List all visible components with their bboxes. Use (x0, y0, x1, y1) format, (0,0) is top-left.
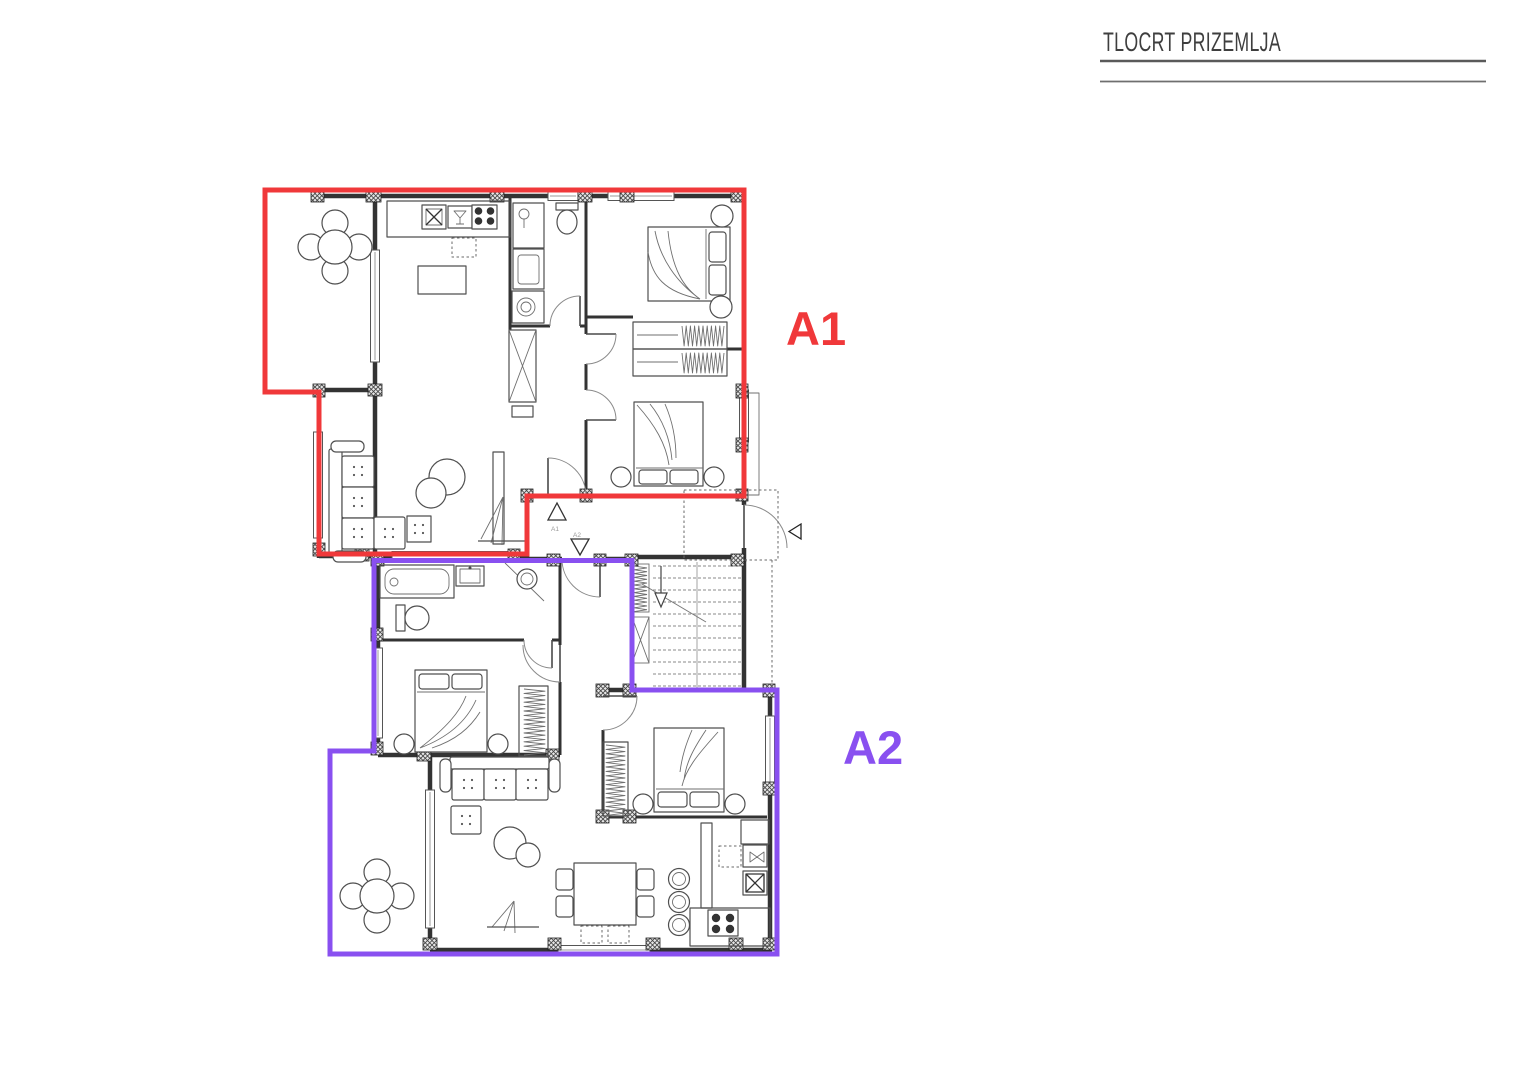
entry-canopy (684, 490, 778, 688)
entry-marker-a2-label: A2 (573, 532, 581, 539)
building-entrance-triangle (789, 524, 801, 539)
terrace-table-a2 (340, 859, 414, 933)
entry-marker-a1-label: A1 (551, 526, 559, 533)
terrace-table-a1 (298, 210, 372, 284)
entry-triangle-a2 (571, 539, 589, 555)
staircase (632, 562, 741, 688)
stairs-down-arrow (655, 593, 667, 607)
floor-plan-page: A1 A2 A1 A2 TLOCRT PRIZEMLJA (0, 0, 1527, 1080)
apartment-a2-label: A2 (843, 721, 903, 774)
floor-plan-svg: A1 A2 A1 A2 TLOCRT PRIZEMLJA (0, 0, 1527, 1080)
entry-triangle-a1 (548, 503, 566, 520)
apartment-a1-label: A1 (786, 302, 846, 355)
page-title: TLOCRT PRIZEMLJA (1103, 27, 1281, 57)
entry-markers: A1 A2 (548, 503, 801, 555)
